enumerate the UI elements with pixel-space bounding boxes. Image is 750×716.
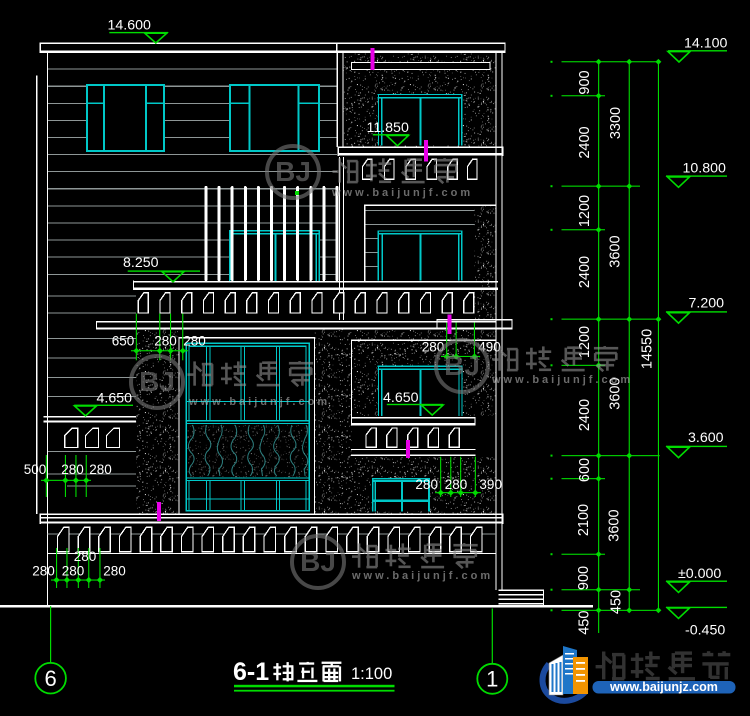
svg-text:www.baijunjf.com: www.baijunjf.com [331, 187, 473, 199]
svg-text:BJ: BJ [139, 366, 175, 397]
svg-text:-0.450: -0.450 [685, 623, 725, 639]
svg-text:500: 500 [24, 462, 47, 477]
svg-text:2400: 2400 [577, 256, 593, 288]
svg-text:8.250: 8.250 [123, 255, 159, 271]
svg-text:280: 280 [62, 564, 85, 579]
svg-text:390: 390 [479, 477, 502, 492]
svg-text:www.baijunjz.com: www.baijunjz.com [609, 680, 718, 694]
svg-text:650: 650 [112, 334, 135, 349]
svg-text:14.100: 14.100 [684, 36, 728, 52]
svg-text:4.650: 4.650 [97, 391, 133, 407]
svg-text:280: 280 [445, 477, 468, 492]
svg-text:±0.000: ±0.000 [678, 566, 721, 582]
svg-text:280: 280 [415, 477, 438, 492]
svg-text:2400: 2400 [577, 399, 593, 431]
svg-text:6: 6 [44, 666, 56, 691]
svg-text:www.baijunjf.com: www.baijunjf.com [491, 374, 633, 386]
svg-text:BJ: BJ [275, 156, 311, 187]
svg-text:450: 450 [577, 611, 593, 635]
svg-text:3300: 3300 [608, 107, 624, 139]
svg-text:4.650: 4.650 [383, 390, 419, 406]
svg-text:11.850: 11.850 [367, 120, 409, 136]
svg-text:600: 600 [577, 458, 593, 482]
svg-text:www.baijunjf.com: www.baijunjf.com [351, 570, 493, 582]
svg-text:BJ: BJ [444, 350, 480, 381]
svg-text:3600: 3600 [607, 509, 623, 541]
svg-text:900: 900 [576, 566, 592, 590]
svg-text:www.baijunjf.com: www.baijunjf.com [188, 396, 330, 408]
svg-text:2400: 2400 [577, 126, 593, 158]
svg-text:14.600: 14.600 [108, 18, 152, 34]
svg-text:280: 280 [89, 462, 112, 477]
svg-text:BJ: BJ [300, 546, 336, 577]
svg-text:280: 280 [154, 334, 177, 349]
svg-text:280: 280 [32, 564, 55, 579]
svg-text:280: 280 [183, 334, 206, 349]
svg-text:1200: 1200 [577, 195, 593, 227]
svg-text:10.800: 10.800 [683, 161, 727, 177]
svg-text:280: 280 [103, 564, 126, 579]
svg-text:450: 450 [609, 590, 625, 614]
svg-text:7.200: 7.200 [689, 296, 725, 312]
svg-text:3.600: 3.600 [688, 430, 724, 446]
svg-text:3600: 3600 [608, 235, 624, 267]
svg-text:900: 900 [577, 70, 593, 94]
svg-text:280: 280 [74, 549, 97, 564]
svg-text:6-1: 6-1 [233, 658, 269, 686]
svg-text:1:100: 1:100 [351, 665, 392, 683]
svg-text:2100: 2100 [576, 504, 592, 536]
svg-text:1: 1 [486, 667, 498, 692]
svg-text:280: 280 [61, 462, 84, 477]
svg-text:14550: 14550 [640, 329, 656, 369]
